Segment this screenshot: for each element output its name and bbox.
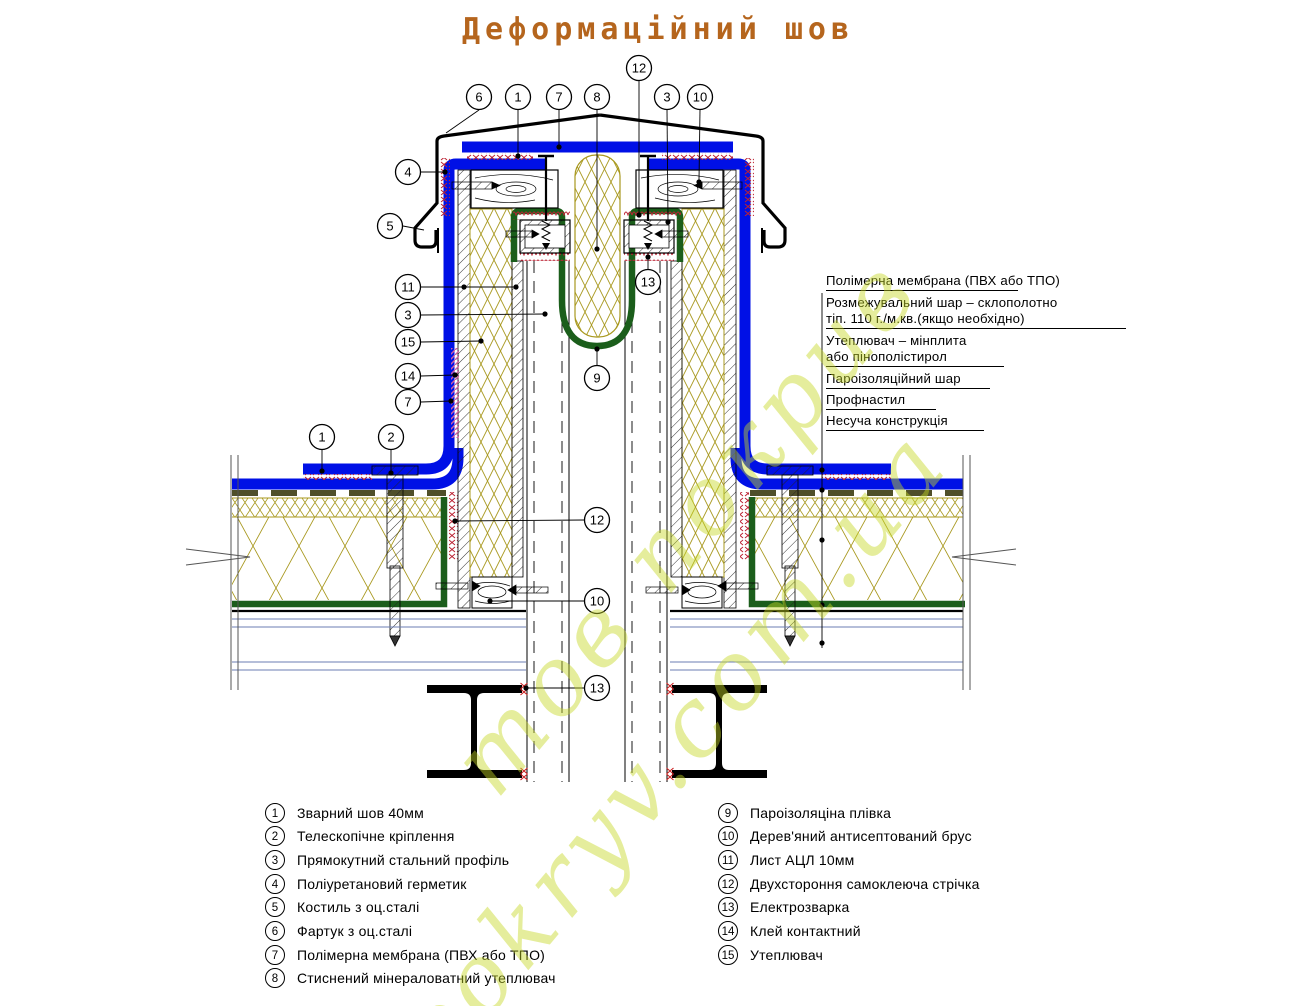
- callout-4: 4: [396, 160, 448, 185]
- legend-item-label: Фартук з оц.сталі: [297, 923, 412, 939]
- wall-insulation-right: [682, 209, 724, 577]
- insulation-main-left: [232, 517, 447, 600]
- legend-item-label: Клей контактний: [750, 923, 861, 939]
- legend-item-label: Полімерна мембрана (ПВХ або ТПО): [297, 947, 545, 963]
- svg-text:12: 12: [632, 61, 646, 76]
- legend-item-label: Зварний шов 40мм: [297, 805, 424, 821]
- i-beam-left: [427, 685, 522, 778]
- legend-number-badge: 10: [718, 826, 738, 846]
- svg-text:3: 3: [404, 308, 411, 323]
- layer-label-1: Полімерна мембрана (ПВХ або ТПО): [826, 273, 1018, 291]
- legend-number-badge: 12: [718, 874, 738, 894]
- svg-text:14: 14: [401, 369, 415, 384]
- contact-glue-strip: [451, 348, 459, 438]
- legend-number-badge: 2: [265, 826, 285, 846]
- technical-drawing: 617812310451131514712121013139: [0, 0, 1302, 1006]
- svg-text:1: 1: [514, 90, 521, 105]
- legend-item-label: Пароізоляціна плівка: [750, 805, 891, 821]
- profiled-deck-left: [232, 611, 526, 670]
- layer-label-6: Несуча конструкція: [826, 413, 984, 431]
- legend-item-10: 10Дерев'яний антисептований брус: [718, 826, 980, 847]
- weld-seam-top-right: [662, 153, 733, 160]
- adhesive-tape-right: [740, 492, 749, 560]
- legend-item-11: 11Лист АЦЛ 10мм: [718, 849, 980, 870]
- acl-sheet-inner-left: [512, 261, 523, 577]
- svg-text:3: 3: [663, 90, 670, 105]
- legend-number-badge: 14: [718, 921, 738, 941]
- legend-item-label: Костиль з оц.сталі: [297, 899, 419, 915]
- legend-item-label: Утеплювач: [750, 947, 823, 963]
- legend-number-badge: 8: [265, 968, 285, 988]
- i-beam-right: [672, 685, 767, 778]
- svg-text:1: 1: [318, 430, 325, 445]
- legend-number-badge: 5: [265, 897, 285, 917]
- svg-text:15: 15: [401, 335, 415, 350]
- legend-item-label: Телескопічне кріплення: [297, 828, 455, 844]
- wall-insulation-left: [470, 209, 512, 577]
- legend-number-badge: 11: [718, 850, 738, 870]
- svg-text:13: 13: [590, 681, 604, 696]
- legend-item-label: Електрозварка: [750, 899, 850, 915]
- legend-item-13: 13Електрозварка: [718, 897, 980, 918]
- svg-text:9: 9: [593, 371, 600, 386]
- legend-item-9: 9Пароізоляціна плівка: [718, 802, 980, 823]
- profiled-deck-right: [670, 611, 963, 670]
- weld-seam-top-left: [467, 153, 533, 160]
- svg-text:12: 12: [590, 513, 604, 528]
- callout-9: 9: [585, 346, 610, 390]
- polyurethane-sealant-right: [744, 158, 754, 216]
- legend-item-3: 3Прямокутний стальний профіль: [265, 849, 556, 870]
- legend-number-badge: 15: [718, 945, 738, 965]
- legend-item-1: 1Зварний шов 40мм: [265, 802, 556, 823]
- legend-number-badge: 3: [265, 850, 285, 870]
- svg-text:8: 8: [593, 90, 600, 105]
- legend-number-badge: 13: [718, 897, 738, 917]
- legend-item-label: Двухстороння самоклеюча стрічка: [750, 876, 980, 892]
- legend-column-left: 1Зварний шов 40мм2Телескопічне кріплення…: [265, 802, 556, 992]
- legend-item-15: 15Утеплювач: [718, 944, 980, 965]
- legend-item-5: 5Костиль з оц.сталі: [265, 897, 556, 918]
- svg-text:6: 6: [475, 90, 482, 105]
- svg-text:11: 11: [401, 280, 415, 295]
- polyurethane-sealant-left: [440, 158, 450, 216]
- legend-number-badge: 1: [265, 803, 285, 823]
- legend-item-label: Поліуретановий герметик: [297, 876, 467, 892]
- svg-text:10: 10: [693, 90, 707, 105]
- legend-number-badge: 6: [265, 921, 285, 941]
- legend-item-8: 8Стиснений мінераловатний утеплювач: [265, 968, 556, 989]
- legend-item-label: Прямокутний стальний профіль: [297, 852, 509, 868]
- legend-number-badge: 4: [265, 874, 285, 894]
- legend-item-4: 4Поліуретановий герметик: [265, 873, 556, 894]
- adhesive-tape-left: [449, 492, 458, 560]
- svg-text:4: 4: [404, 165, 411, 180]
- legend-column-right: 9Пароізоляціна плівка10Дерев'яний антисе…: [718, 802, 980, 968]
- callout-7: 7: [547, 85, 572, 150]
- legend-item-label: Лист АЦЛ 10мм: [750, 852, 855, 868]
- legend-item-6: 6Фартук з оц.сталі: [265, 920, 556, 941]
- legend-item-12: 12Двухстороння самоклеюча стрічка: [718, 873, 980, 894]
- layer-label-3: Утеплювач – мінплитаабо пінополістирол: [826, 333, 1004, 367]
- svg-text:7: 7: [555, 90, 562, 105]
- svg-text:13: 13: [641, 275, 655, 290]
- legend-number-badge: 7: [265, 945, 285, 965]
- svg-text:10: 10: [590, 594, 604, 609]
- svg-text:7: 7: [404, 395, 411, 410]
- callout-6: 6: [446, 85, 492, 134]
- insulation-dense-left: [232, 498, 447, 517]
- svg-text:5: 5: [386, 219, 393, 234]
- callout-13: 13: [523, 676, 609, 701]
- legend-number-badge: 9: [718, 803, 738, 823]
- layer-label-5: Профнастил: [826, 392, 936, 410]
- legend-item-label: Дерев'яний антисептований брус: [750, 828, 972, 844]
- legend-item-2: 2Телескопічне кріплення: [265, 826, 556, 847]
- legend-item-14: 14Клей контактний: [718, 920, 980, 941]
- acl-sheet-outer-right: [724, 170, 736, 608]
- acl-sheet-outer-left: [458, 170, 470, 608]
- weld-seam-right: [822, 474, 891, 480]
- svg-text:2: 2: [387, 430, 394, 445]
- drawing-sheet: Деформаційний шов тов покрив pokryv.com.…: [0, 0, 1302, 1006]
- compressed-mineral-wool-loop: [575, 155, 620, 337]
- layer-label-4: Пароізоляційний шар: [826, 371, 990, 389]
- weld-seam-left: [303, 474, 372, 480]
- acl-sheet-inner-right: [671, 261, 682, 577]
- layer-label-2: Розмежувальний шар – склополотнотіп. 110…: [826, 295, 1126, 329]
- legend-item-7: 7Полімерна мембрана (ПВХ або ТПО): [265, 944, 556, 965]
- legend-item-label: Стиснений мінераловатний утеплювач: [297, 970, 556, 986]
